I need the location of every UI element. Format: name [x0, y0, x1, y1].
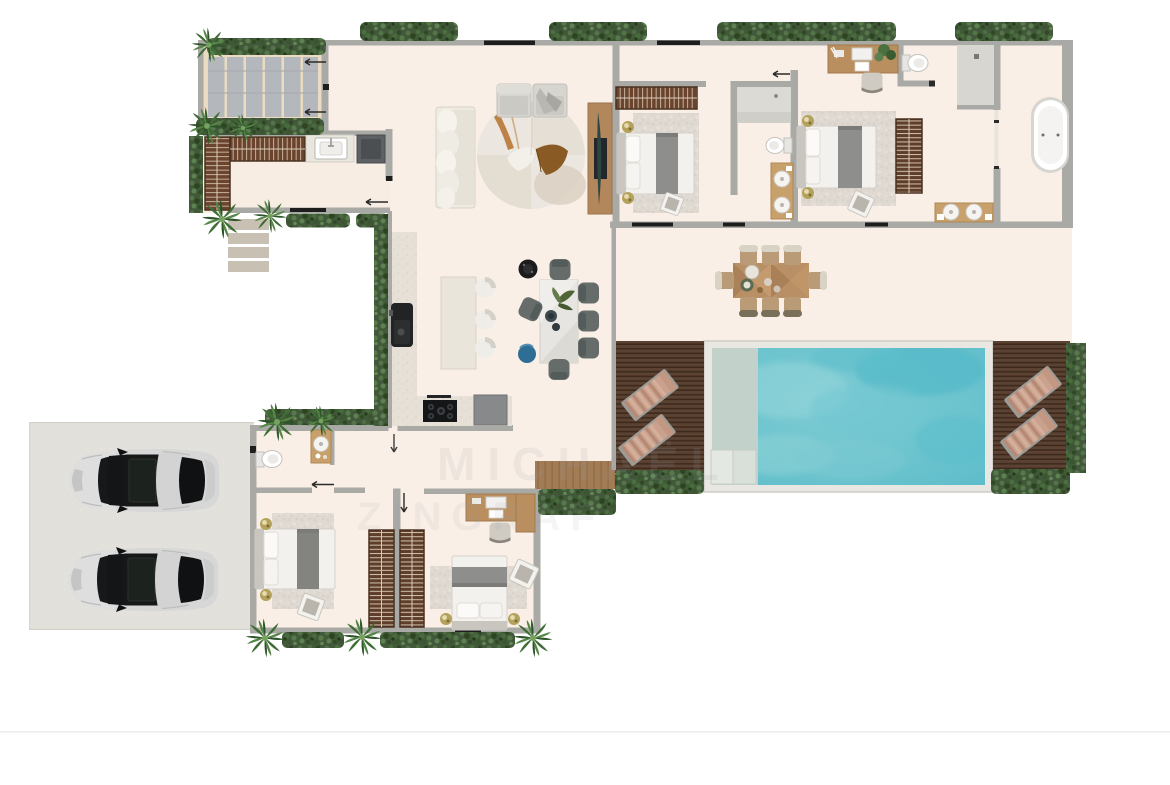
- svg-text:ZINGRAF: ZINGRAF: [357, 495, 605, 539]
- svg-text:MICHAËL: MICHAËL: [437, 438, 731, 490]
